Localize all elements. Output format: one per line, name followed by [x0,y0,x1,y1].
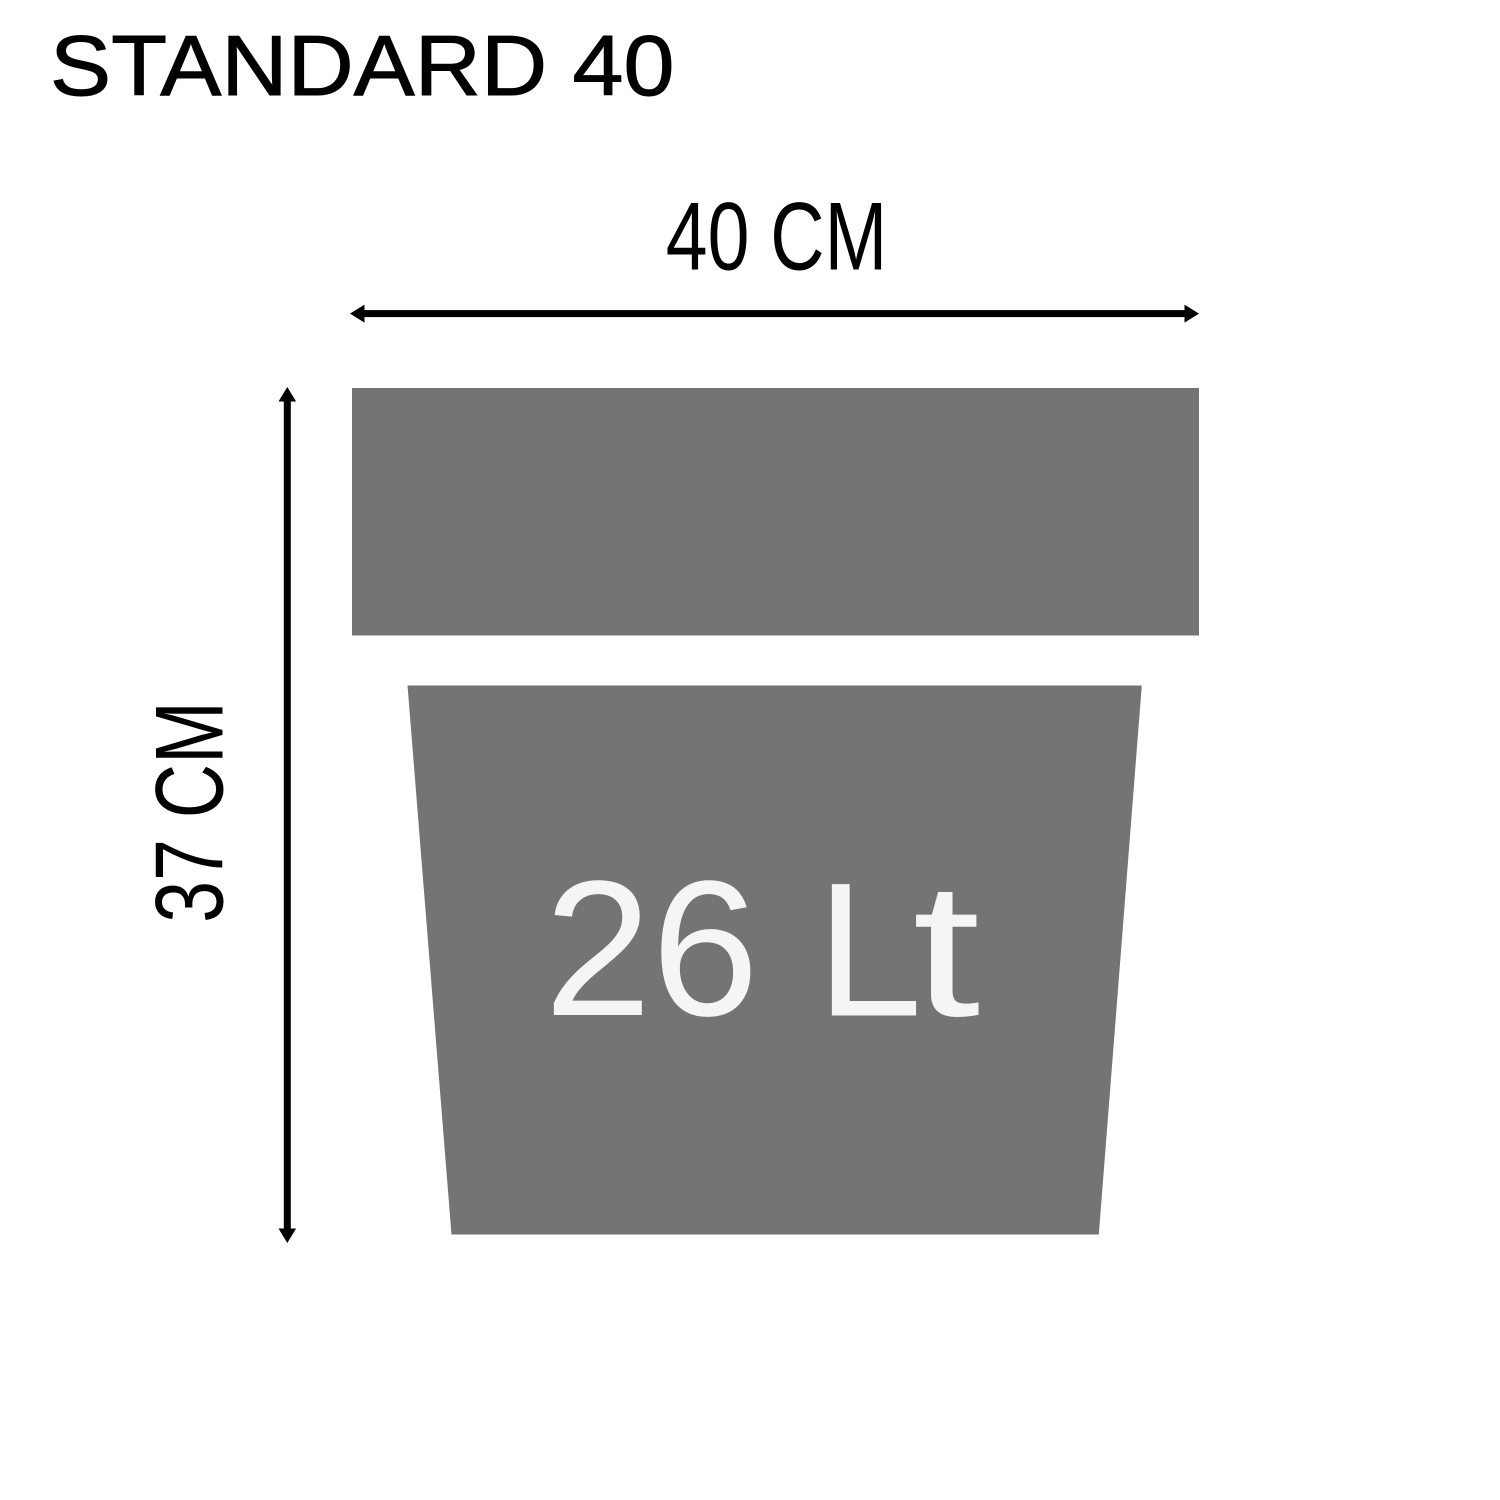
svg-text:37 CM: 37 CM [135,701,243,922]
svg-text:26: 26 [544,840,759,1056]
svg-text:t: t [912,843,980,1056]
svg-text:L: L [816,844,922,1057]
svg-text:STANDARD 40: STANDARD 40 [50,18,674,113]
svg-text:40 CM: 40 CM [666,182,887,290]
